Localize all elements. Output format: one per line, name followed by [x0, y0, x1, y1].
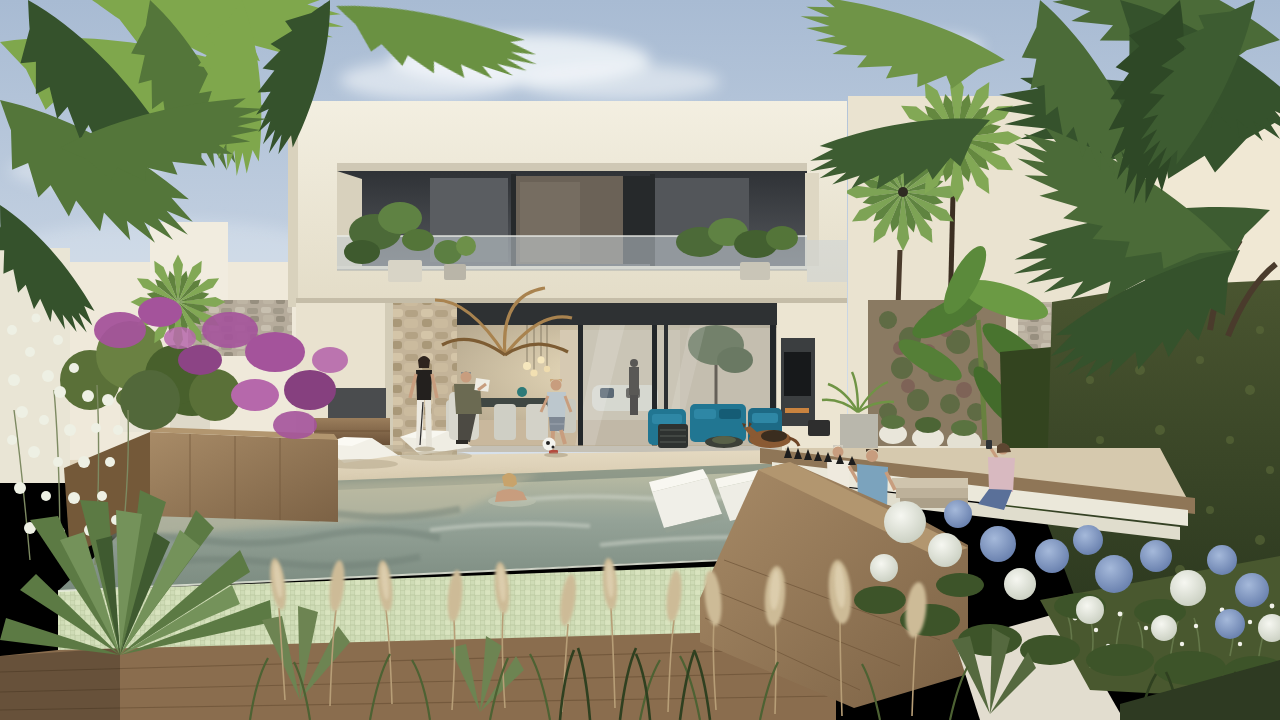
bbq-grill: [808, 420, 830, 436]
tv-screen: [784, 352, 811, 396]
outdoor-fireplace-panel: [328, 388, 386, 418]
linear-fireplace: [785, 408, 809, 413]
render-canvas: Photorealistic architectural rendering o…: [0, 0, 1280, 720]
villa-render-image: Photorealistic architectural rendering o…: [0, 0, 1280, 720]
phone: [986, 440, 992, 449]
